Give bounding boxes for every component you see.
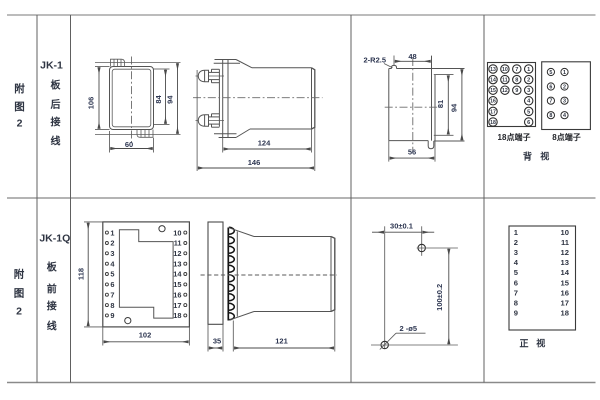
svg-text:124: 124 (258, 138, 271, 147)
svg-text:7: 7 (110, 290, 114, 299)
svg-text:2: 2 (17, 117, 23, 129)
svg-text:9: 9 (514, 309, 518, 318)
svg-text:121: 121 (275, 336, 288, 345)
svg-text:118: 118 (77, 268, 86, 280)
svg-text:35: 35 (213, 336, 221, 345)
svg-text:106: 106 (87, 97, 96, 110)
svg-text:14: 14 (490, 78, 496, 84)
svg-text:1: 1 (514, 228, 519, 237)
svg-text:56: 56 (408, 148, 416, 157)
svg-text:11: 11 (174, 239, 182, 248)
svg-text:5: 5 (527, 109, 530, 115)
svg-text:2: 2 (16, 306, 22, 318)
svg-text:30±0.1: 30±0.1 (390, 222, 413, 231)
svg-text:4: 4 (563, 113, 566, 119)
svg-text:10: 10 (173, 228, 181, 237)
svg-text:94: 94 (450, 103, 459, 112)
svg-text:146: 146 (248, 158, 261, 167)
svg-text:84: 84 (154, 95, 163, 104)
svg-text:12: 12 (561, 248, 569, 257)
svg-text:6: 6 (549, 84, 552, 90)
svg-text:线: 线 (51, 135, 61, 148)
svg-text:接: 接 (51, 116, 61, 129)
svg-text:17: 17 (490, 109, 496, 115)
svg-text:16: 16 (561, 288, 569, 297)
svg-text:2 -ø5: 2 -ø5 (400, 324, 418, 333)
svg-text:17: 17 (173, 301, 181, 310)
svg-text:81: 81 (436, 100, 445, 108)
svg-text:2: 2 (110, 239, 114, 248)
svg-text:18: 18 (173, 311, 181, 320)
svg-text:12: 12 (502, 88, 508, 94)
svg-text:正: 正 (519, 339, 528, 349)
svg-text:12: 12 (173, 249, 181, 258)
svg-text:板: 板 (51, 79, 62, 92)
svg-text:18: 18 (561, 309, 569, 318)
svg-text:7: 7 (514, 288, 518, 297)
svg-text:3: 3 (527, 88, 530, 94)
svg-text:2: 2 (514, 238, 518, 247)
svg-text:16: 16 (490, 99, 496, 105)
svg-text:4: 4 (110, 259, 115, 268)
svg-text:3: 3 (514, 248, 518, 257)
svg-text:1: 1 (110, 228, 114, 237)
svg-text:附: 附 (14, 82, 25, 95)
svg-text:9: 9 (110, 311, 114, 320)
svg-text:1: 1 (563, 70, 566, 76)
svg-text:JK-1: JK-1 (40, 60, 63, 72)
svg-text:8: 8 (515, 78, 518, 84)
svg-text:4: 4 (527, 99, 531, 105)
svg-text:2: 2 (563, 84, 566, 90)
svg-text:4: 4 (514, 258, 519, 267)
svg-text:8: 8 (110, 301, 114, 310)
svg-text:16: 16 (173, 290, 181, 299)
svg-text:10: 10 (502, 67, 508, 73)
svg-text:视: 视 (536, 338, 545, 349)
svg-text:13: 13 (490, 67, 496, 73)
svg-text:3: 3 (563, 99, 566, 105)
svg-text:5: 5 (549, 70, 552, 76)
svg-text:6: 6 (110, 280, 114, 289)
svg-text:60: 60 (125, 140, 133, 149)
svg-text:102: 102 (139, 331, 152, 340)
svg-text:6: 6 (514, 278, 518, 287)
svg-text:10: 10 (561, 228, 569, 237)
svg-text:13: 13 (173, 259, 181, 268)
svg-text:8: 8 (514, 298, 518, 307)
svg-text:接: 接 (47, 300, 57, 313)
svg-text:JK-1Q: JK-1Q (39, 233, 70, 245)
svg-text:图: 图 (14, 288, 25, 300)
svg-text:5: 5 (514, 268, 519, 277)
svg-text:8点端子: 8点端子 (552, 132, 580, 142)
svg-text:94: 94 (165, 95, 174, 104)
svg-text:18: 18 (490, 120, 496, 126)
svg-text:6: 6 (527, 120, 530, 126)
svg-text:前: 前 (47, 283, 57, 296)
svg-text:2-R2.5: 2-R2.5 (364, 55, 387, 64)
svg-text:18点端子: 18点端子 (498, 132, 531, 142)
svg-text:15: 15 (561, 278, 570, 287)
svg-text:15: 15 (173, 280, 181, 289)
svg-text:背: 背 (523, 151, 532, 162)
svg-text:图: 图 (14, 101, 25, 113)
svg-text:17: 17 (561, 298, 569, 307)
svg-text:9: 9 (515, 88, 518, 94)
svg-text:15: 15 (490, 88, 496, 94)
svg-text:7: 7 (549, 99, 552, 105)
svg-text:11: 11 (502, 78, 508, 84)
svg-text:14: 14 (173, 270, 182, 279)
svg-text:2: 2 (527, 78, 530, 84)
svg-text:视: 视 (540, 151, 549, 162)
svg-text:14: 14 (561, 268, 570, 277)
svg-text:48: 48 (408, 52, 416, 61)
svg-text:3: 3 (110, 249, 114, 258)
svg-text:板: 板 (47, 261, 58, 274)
svg-text:7: 7 (515, 67, 518, 73)
svg-text:100±0.2: 100±0.2 (435, 284, 444, 311)
svg-text:5: 5 (110, 270, 114, 279)
svg-text:线: 线 (47, 320, 57, 333)
svg-text:1: 1 (527, 67, 530, 73)
svg-text:附: 附 (14, 268, 25, 281)
svg-text:后: 后 (51, 98, 61, 111)
svg-text:11: 11 (561, 238, 570, 247)
svg-text:13: 13 (561, 258, 569, 267)
svg-text:8: 8 (549, 113, 552, 119)
